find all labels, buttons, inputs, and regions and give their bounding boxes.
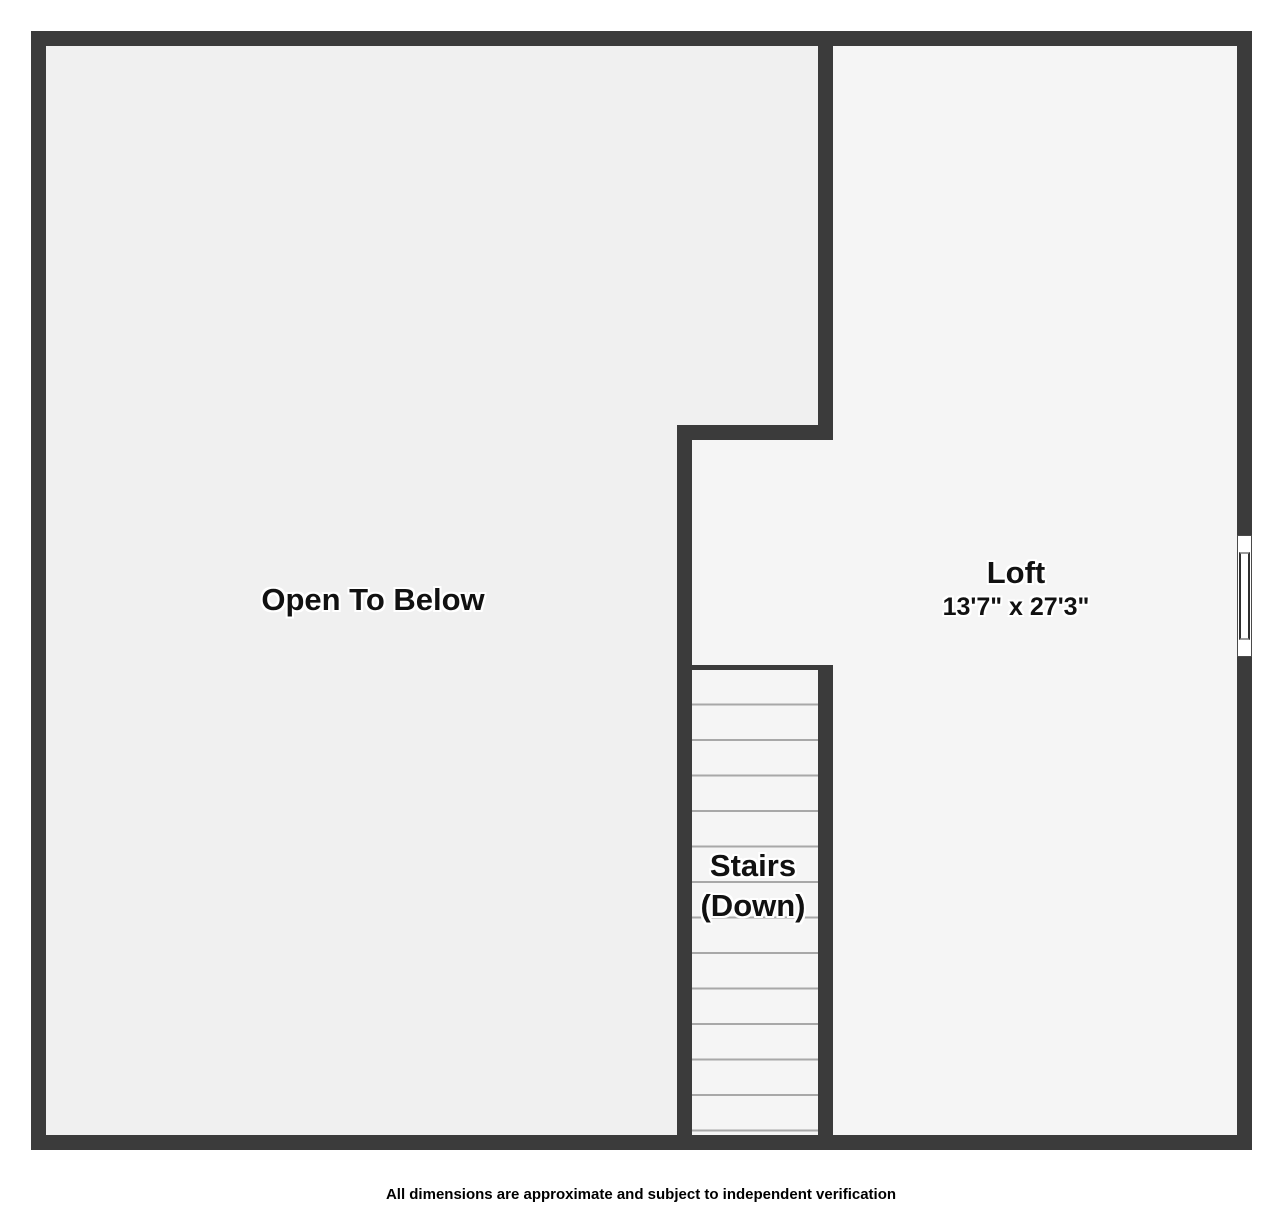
stairs-label-line2: (Down) <box>700 886 805 926</box>
room-open-to-below-area-upper <box>677 46 818 425</box>
room-loft-area-landing <box>692 440 833 665</box>
stairs-label-line1: Stairs <box>700 846 805 886</box>
loft-dimensions: 13'7" x 27'3" <box>943 592 1090 622</box>
room-label-loft: Loft 13'7" x 27'3" <box>943 554 1090 622</box>
window-pane <box>1239 552 1250 640</box>
disclaimer-text: All dimensions are approximate and subje… <box>0 1186 1282 1203</box>
window-icon <box>1237 535 1252 657</box>
floor-plan: Open To Below Loft 13'7" x 27'3" Stairs … <box>31 31 1252 1150</box>
loft-name: Loft <box>943 554 1090 592</box>
room-label-open-to-below: Open To Below <box>261 582 484 618</box>
room-label-stairs: Stairs (Down) <box>700 846 805 926</box>
